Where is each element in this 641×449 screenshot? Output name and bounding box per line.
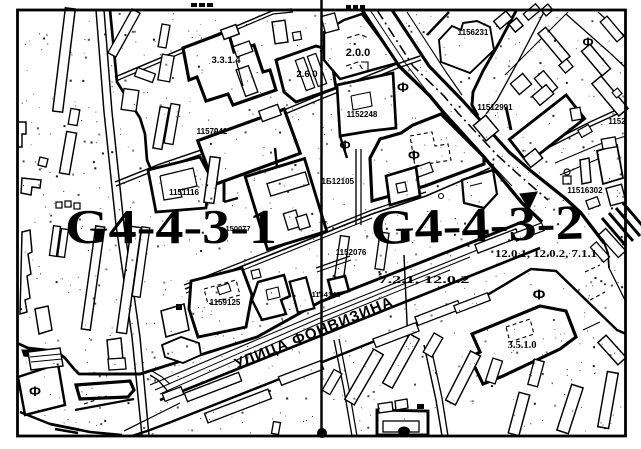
svg-text:11512991: 11512991 xyxy=(477,103,513,112)
svg-text:Ф: Ф xyxy=(408,147,420,163)
svg-text:Ф: Ф xyxy=(29,383,41,399)
svg-text:11516302: 11516302 xyxy=(567,186,603,195)
svg-text:Ф: Ф xyxy=(339,138,350,153)
svg-text:1156231: 1156231 xyxy=(458,28,489,37)
svg-text:Ф: Ф xyxy=(582,35,593,50)
svg-text:1159125: 1159125 xyxy=(210,298,241,307)
svg-text:3.3.1.4: 3.3.1.4 xyxy=(211,55,241,66)
svg-text:Ф: Ф xyxy=(397,79,409,95)
svg-text:1152: 1152 xyxy=(608,117,626,126)
svg-text:G4-4-3-1: G4-4-3-1 xyxy=(65,199,277,254)
svg-text:7.2.1, 12.0.2: 7.2.1, 12.0.2 xyxy=(379,275,470,286)
svg-text:1134148: 1134148 xyxy=(312,290,341,299)
svg-text:2.6.0: 2.6.0 xyxy=(296,69,317,80)
svg-text:3.5.1.0: 3.5.1.0 xyxy=(508,340,537,351)
svg-text:2.0.0: 2.0.0 xyxy=(346,47,370,59)
svg-text:G4-4-3-2: G4-4-3-2 xyxy=(370,194,584,255)
svg-text:1151116: 1151116 xyxy=(169,188,199,197)
svg-text:1Б12105: 1Б12105 xyxy=(322,177,355,186)
svg-text:Ф: Ф xyxy=(533,286,546,303)
svg-text:1157942: 1157942 xyxy=(197,127,228,136)
svg-text:1152076: 1152076 xyxy=(336,248,367,257)
svg-text:1152248: 1152248 xyxy=(347,110,378,119)
